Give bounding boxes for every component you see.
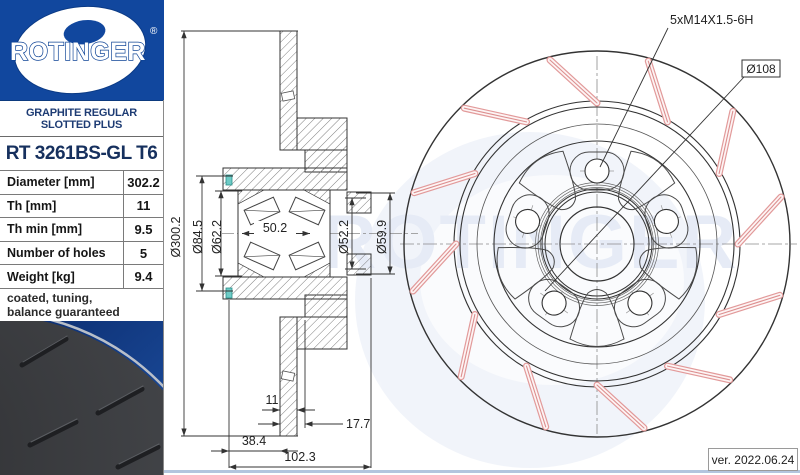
dim-offset-depth: 17.7	[346, 417, 370, 431]
bearing-seal	[226, 288, 232, 298]
table-row: Th [mm] 11	[0, 195, 163, 219]
product-line-label: GRAPHITE REGULAR SLOTTED PLUS	[0, 100, 163, 137]
spec-value: 9.4	[123, 265, 163, 288]
dim-outer-diameter: Ø300.2	[169, 216, 183, 257]
spec-label: Number of holes	[0, 242, 123, 265]
spec-label: Th min [mm]	[0, 218, 123, 241]
spec-label: Diameter [mm]	[0, 171, 123, 194]
features-note: coated, tuning, balance guaranteed	[0, 289, 163, 321]
note-line: coated, tuning,	[7, 291, 163, 305]
spec-value: 9.5	[123, 218, 163, 241]
brand-logo: ROTINGER ®	[0, 0, 163, 100]
bearing-seal	[226, 175, 232, 185]
dim-hub-outer-diameter: Ø59.9	[375, 220, 389, 254]
table-row: Number of holes 5	[0, 242, 163, 266]
spec-label: Weight [kg]	[0, 265, 123, 288]
table-row: Th min [mm] 9.5	[0, 218, 163, 242]
bolt-circle-label: Ø108	[746, 62, 776, 76]
dim-disc-thickness: 11	[266, 393, 279, 407]
note-line: balance guaranteed	[7, 305, 163, 319]
product-photo	[0, 321, 163, 475]
info-panel: ROTINGER ® GRAPHITE REGULAR SLOTTED PLUS…	[0, 0, 164, 475]
table-row: Diameter [mm] 302.2	[0, 171, 163, 195]
dim-bearing-width: 50.2	[263, 221, 287, 235]
dim-hub-inner-diameter: Ø52.2	[337, 220, 351, 254]
version-text: ver. 2022.06.24	[712, 453, 795, 467]
logo-wordmark: ROTINGER	[10, 38, 146, 66]
rotinger-logo-graphic: ROTINGER ®	[0, 0, 164, 100]
thread-spec-label: 5xM14X1.5-6H	[670, 13, 753, 27]
spec-label: Th [mm]	[0, 195, 123, 218]
dim-mount-depth: 38.4	[242, 434, 266, 448]
spec-table: Diameter [mm] 302.2 Th [mm] 11 Th min [m…	[0, 171, 163, 289]
version-box: ver. 2022.06.24	[708, 448, 798, 471]
table-row: Weight [kg] 9.4	[0, 265, 163, 289]
dim-flange-seal-diameter: Ø84.5	[191, 220, 205, 254]
dim-bore-diameter: Ø62.2	[210, 220, 224, 254]
dim-overall-width: 102.3	[284, 450, 315, 464]
disc-photo-graphic	[0, 321, 163, 475]
registered-trademark-icon: ®	[150, 26, 158, 37]
spec-value: 302.2	[123, 171, 163, 194]
datasheet-page: ROTINGER	[0, 0, 800, 475]
rotinger-watermark: ROTINGER	[321, 132, 738, 468]
spec-value: 5	[123, 242, 163, 265]
spec-value: 11	[123, 195, 163, 218]
page-footer-line	[164, 470, 800, 473]
part-number: RT 3261BS-GL T6	[0, 137, 163, 171]
